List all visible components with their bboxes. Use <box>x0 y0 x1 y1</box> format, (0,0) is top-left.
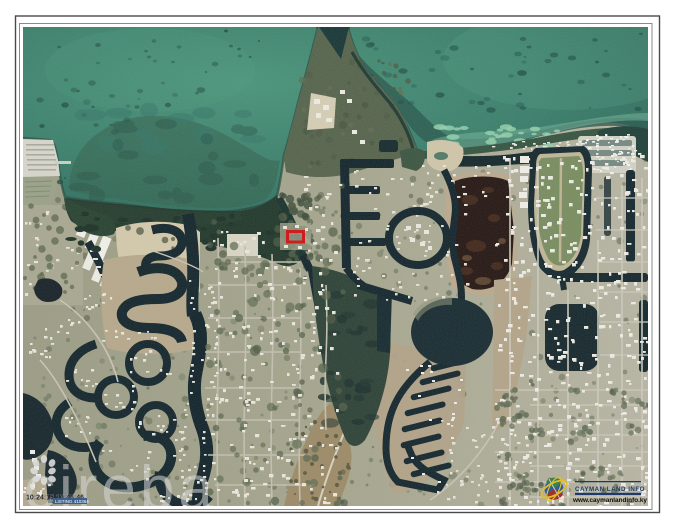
svg-text:LISTING 410364: LISTING 410364 <box>55 499 89 504</box>
svg-text:CAYMAN LAND INFO .KY: CAYMAN LAND INFO .KY <box>575 486 659 493</box>
svg-text:www.caymanlandinfo.ky: www.caymanlandinfo.ky <box>572 497 647 504</box>
